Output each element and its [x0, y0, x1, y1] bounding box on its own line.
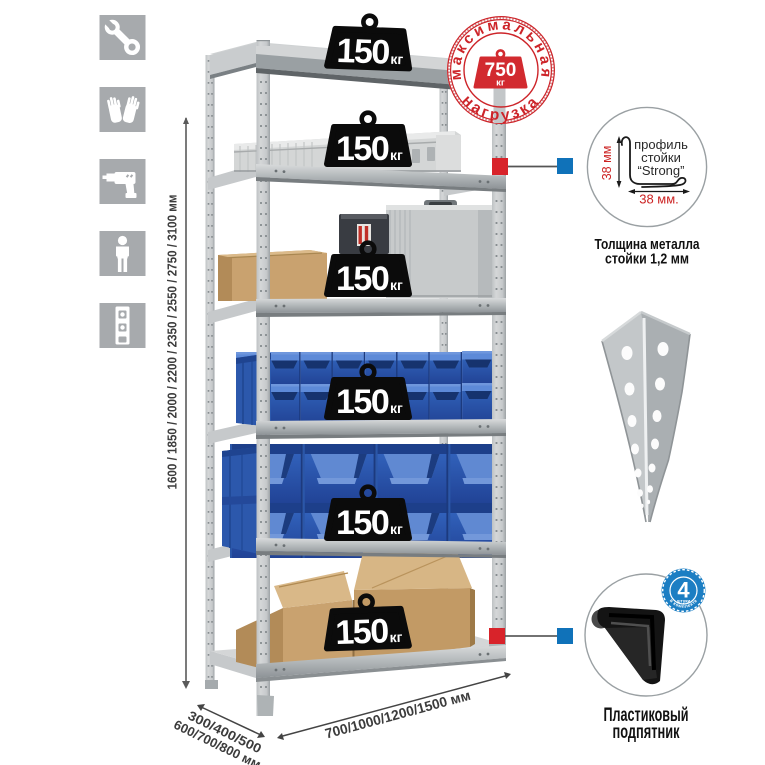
- svg-text:“Strong”: “Strong”: [638, 163, 685, 178]
- svg-text:кг: кг: [496, 78, 505, 89]
- svg-text:38 мм.: 38 мм.: [639, 192, 679, 207]
- svg-text:1600 / 1850 / 2000 / 2200 / 23: 1600 / 1850 / 2000 / 2200 / 2350 / 2550 …: [165, 195, 180, 490]
- svg-text:38 мм: 38 мм: [600, 146, 614, 181]
- svg-text:стойки 1,2 мм: стойки 1,2 мм: [605, 251, 689, 268]
- svg-text:штуки: штуки: [677, 599, 691, 604]
- svg-text:подпятник: подпятник: [613, 722, 680, 743]
